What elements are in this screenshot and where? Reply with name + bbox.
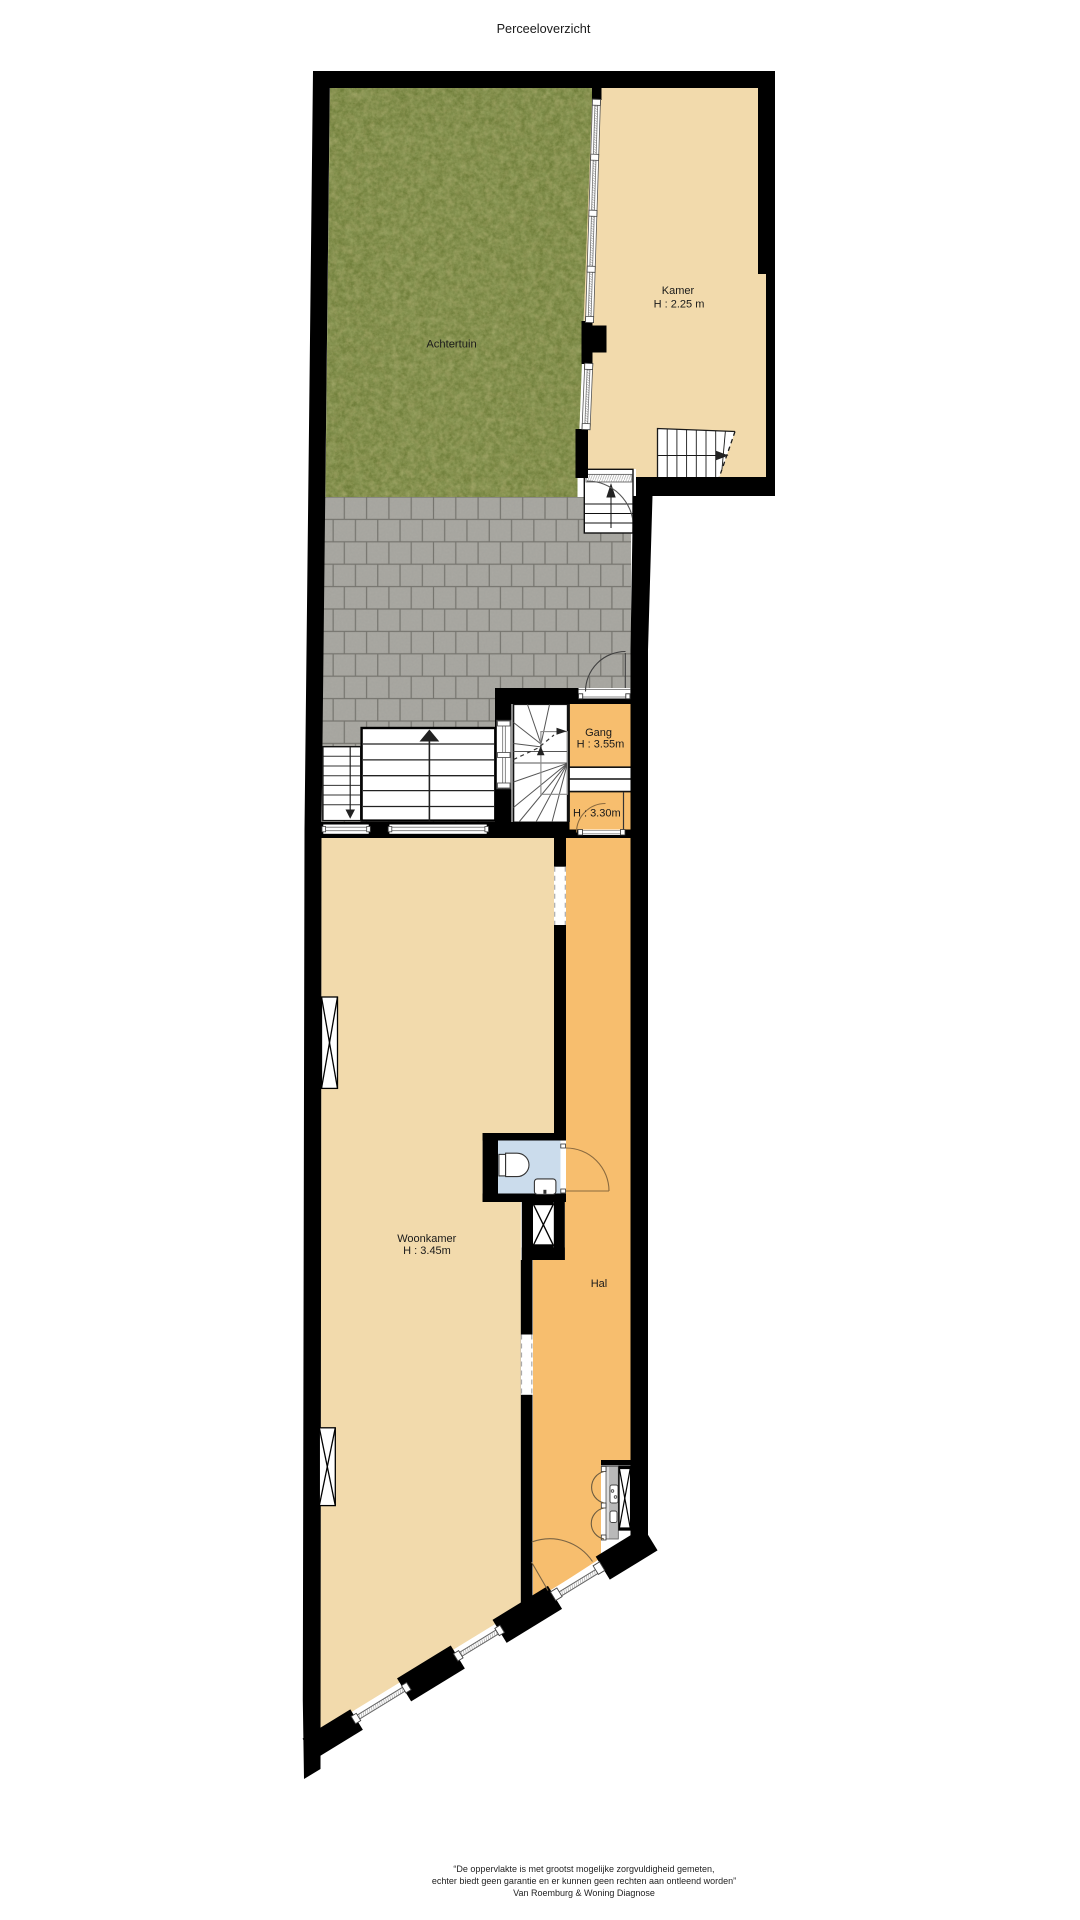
svg-text:Kamer: Kamer xyxy=(662,285,695,297)
svg-text:H : 3.30m: H : 3.30m xyxy=(573,808,621,820)
svg-text:H : 2.25 m: H : 2.25 m xyxy=(654,299,705,311)
svg-text:Gang: Gang xyxy=(585,727,612,739)
svg-text:H : 3.55m: H : 3.55m xyxy=(577,739,625,751)
svg-text:H : 3.45m: H : 3.45m xyxy=(403,1245,451,1257)
svg-text:Van Roemburg & Woning Diagnose: Van Roemburg & Woning Diagnose xyxy=(513,1888,655,1898)
svg-text:echter biedt geen garantie en: echter biedt geen garantie en er kunnen … xyxy=(432,1876,736,1886)
svg-text:Hal: Hal xyxy=(591,1278,608,1290)
svg-text:“De oppervlakte is met grootst: “De oppervlakte is met grootst mogelijke… xyxy=(453,1864,714,1874)
svg-text:Achtertuin: Achtertuin xyxy=(426,339,476,351)
svg-text:Woonkamer: Woonkamer xyxy=(397,1233,456,1245)
svg-text:Perceeloverzicht: Perceeloverzicht xyxy=(497,22,591,36)
